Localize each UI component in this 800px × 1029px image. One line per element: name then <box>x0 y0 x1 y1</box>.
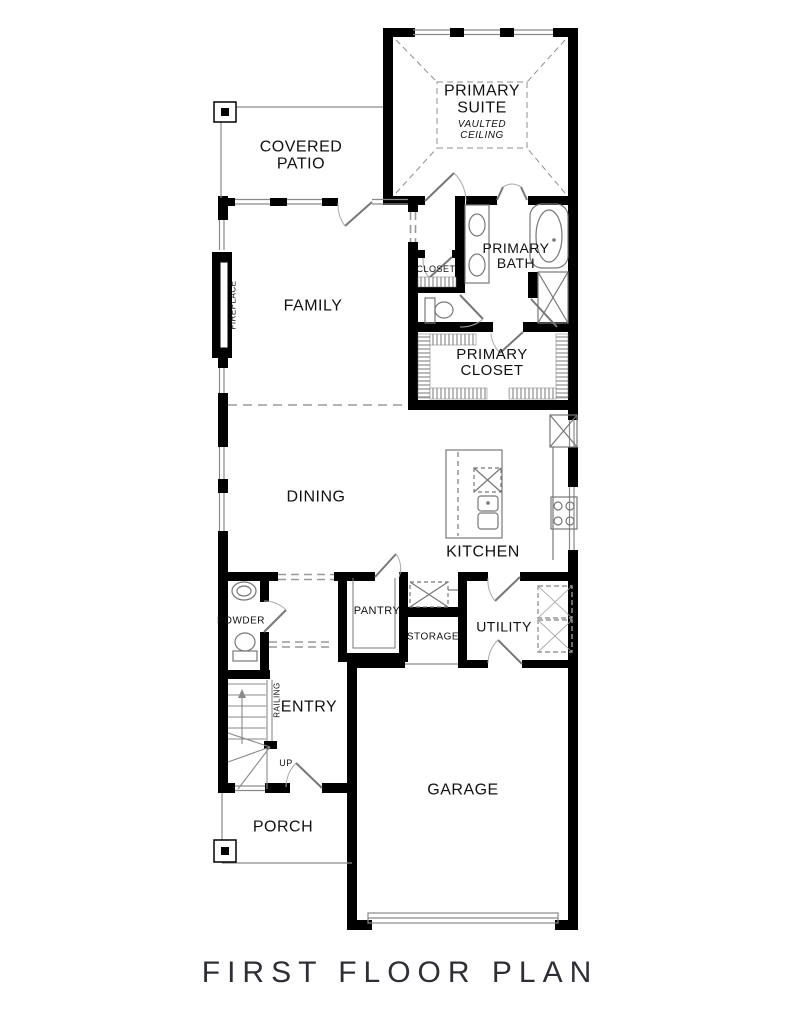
ceiling-note-label: VAULTED CEILING <box>451 120 513 142</box>
room-label-kitchen: KITCHEN <box>423 543 543 560</box>
room-label-utility: UTILITY <box>464 619 544 634</box>
room-label-family: FAMILY <box>253 297 373 314</box>
railing-label: RAILING <box>274 682 283 718</box>
plan-title: FIRST FLOOR PLAN <box>202 956 599 990</box>
closet-shelving <box>418 277 568 399</box>
room-label-powder: POWDER <box>211 617 271 628</box>
room-label-dining: DINING <box>256 488 376 505</box>
room-label-storage: STORAGE <box>398 633 468 644</box>
room-label-pantry: PANTRY <box>347 606 407 618</box>
room-label-garage: GARAGE <box>408 781 518 798</box>
stairs <box>228 680 272 789</box>
room-label-covered-patio: COVERED PATIO <box>249 139 353 174</box>
fireplace-label: FIREPLACE <box>230 281 239 330</box>
floor-plan: PRIMARY SUITE VAULTED CEILING COVERED PA… <box>0 0 800 1029</box>
room-label-primary-suite: PRIMARY SUITE <box>426 83 538 118</box>
room-label-porch: PORCH <box>238 818 328 835</box>
floor-plan-drawing <box>0 0 800 1029</box>
room-label-closet: CLOSET <box>406 265 466 275</box>
room-label-primary-bath: PRIMARY BATH <box>476 241 556 271</box>
room-label-primary-closet: PRIMARY CLOSET <box>443 347 541 379</box>
stairs-up-label: UP <box>271 759 301 769</box>
